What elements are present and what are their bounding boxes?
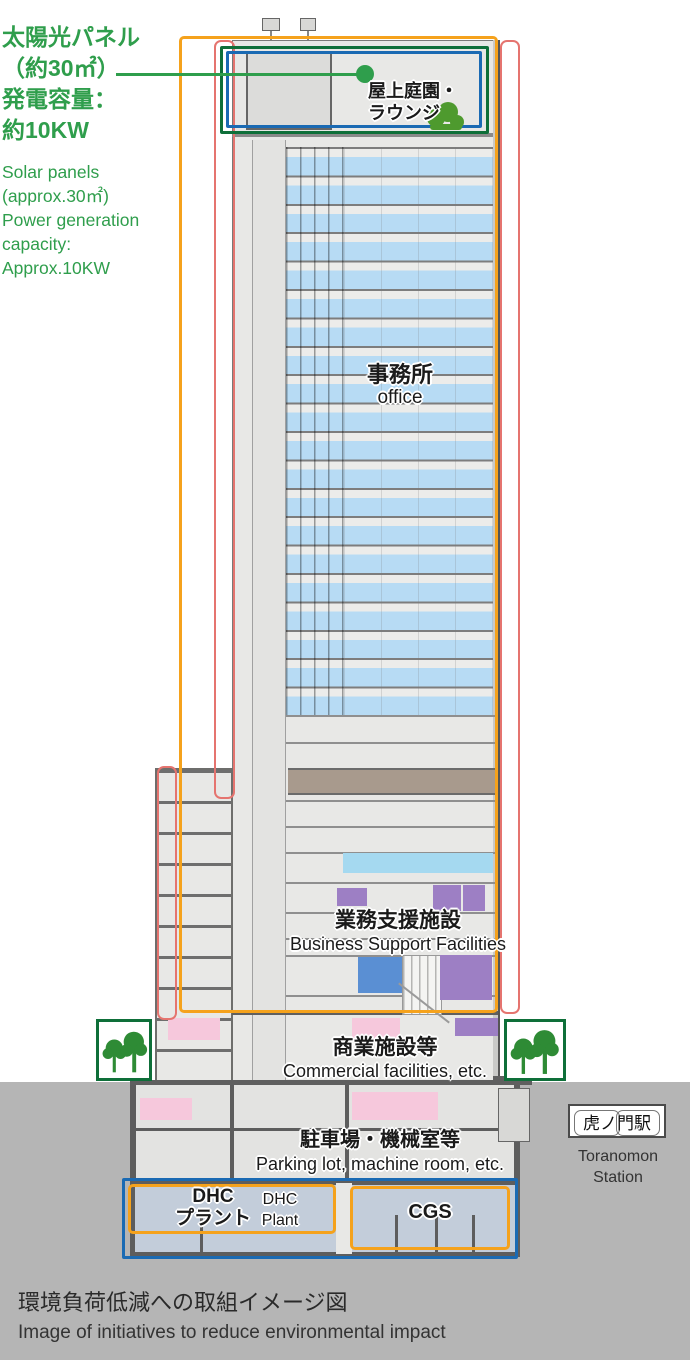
commercial-label: 商業施設等 Commercial facilities, etc. [255,1035,515,1082]
purple-facility-block [455,1018,498,1036]
solar-label-jp: 太陽光パネル （約30㎡） 発電容量： 約10KW [2,22,202,146]
tree-icon [101,1024,151,1080]
commercial-label-en: Commercial facilities, etc. [255,1060,515,1082]
environment-initiatives-diagram: 太陽光パネル （約30㎡） 発電容量： 約10KW Solar panels (… [0,0,690,1360]
pink-commercial-block [168,1018,220,1040]
station-label-jp: 虎ノ門駅 [583,1109,651,1134]
business-support-label-jp: 業務支援施設 [263,908,533,933]
pink-facade-frame-left [214,40,235,799]
office-label: 事務所 office [330,362,470,409]
office-label-jp: 事務所 [330,362,470,387]
parking-label: 駐車場・機械室等 Parking lot, machine room, etc. [235,1128,525,1175]
pink-b1-block [352,1092,438,1120]
rooftop-garden-label: 屋上庭園・ ラウンジ [368,80,488,124]
parking-label-jp: 駐車場・機械室等 [235,1128,525,1153]
pink-b1-block [140,1098,192,1120]
pink-facade-frame-annex [157,766,177,1020]
roof-equipment [300,18,316,31]
caption-en: Image of initiatives to reduce environme… [18,1322,446,1344]
cgs-label: CGS [398,1200,462,1225]
caption-jp: 環境負荷低減への取組イメージ図 [18,1285,348,1317]
solar-label-en: Solar panels (approx.30㎡) Power generati… [2,160,212,280]
dhc-label-en: DHC Plant [248,1189,312,1231]
business-support-label: 業務支援施設 Business Support Facilities [263,908,533,955]
tree-icon [509,1024,563,1080]
basement-wall [230,1085,234,1180]
pink-facade-frame-right [500,40,520,1014]
commercial-label-jp: 商業施設等 [255,1035,515,1060]
station-box: 虎ノ門駅 [568,1104,666,1138]
station-label-en: Toranomon Station [558,1146,678,1188]
office-label-en: office [330,387,470,409]
roof-equipment [262,18,280,31]
parking-label-en: Parking lot, machine room, etc. [235,1153,525,1175]
street-tree-box-left [96,1019,152,1081]
business-support-label-en: Business Support Facilities [263,933,533,955]
